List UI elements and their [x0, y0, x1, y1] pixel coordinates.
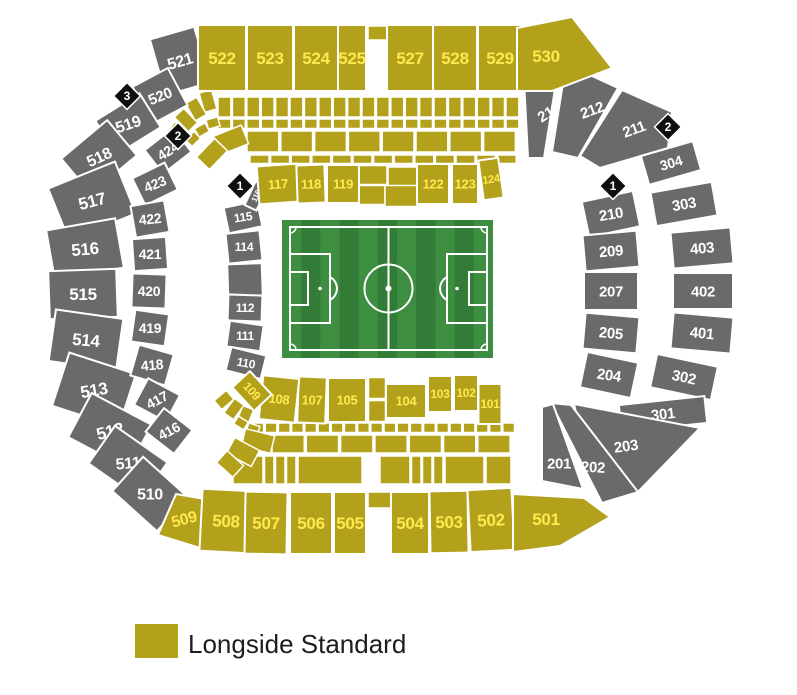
seating-block — [290, 119, 303, 129]
seating-block — [445, 456, 484, 484]
marker-label: 2 — [665, 120, 672, 134]
section-102[interactable]: 102 — [454, 375, 478, 411]
seating-block — [486, 456, 511, 484]
seating-block — [276, 119, 289, 129]
section-421: 421 — [132, 237, 168, 271]
legend-swatch — [135, 624, 178, 658]
section-420: 420 — [131, 273, 166, 308]
seating-block — [376, 97, 389, 117]
seating-block — [368, 26, 388, 40]
section-104[interactable]: 104 — [386, 384, 426, 418]
section-112: 112 — [228, 294, 263, 321]
seating-block — [332, 155, 351, 164]
section-118[interactable]: 118 — [296, 165, 325, 204]
seating-block — [333, 97, 346, 117]
seating-block — [463, 119, 476, 129]
seating-block — [376, 119, 389, 129]
section-506[interactable]: 506 — [290, 492, 332, 554]
seating-block — [247, 131, 279, 152]
seating-block — [506, 97, 519, 117]
seating-block — [456, 155, 475, 164]
seating-block — [261, 97, 274, 117]
seating-block — [391, 97, 404, 117]
seating-block — [375, 435, 407, 453]
seating-block — [434, 119, 447, 129]
football-pitch — [282, 220, 493, 358]
seating-block — [247, 119, 260, 129]
seating-block — [382, 131, 414, 152]
seating-block — [410, 423, 422, 433]
seating-block — [405, 97, 418, 117]
seating-block — [444, 435, 476, 453]
legend-label: Longside Standard — [188, 629, 406, 659]
seating-block — [374, 155, 393, 164]
seating-block — [348, 97, 361, 117]
seating-block — [450, 423, 462, 433]
section-303: 303 — [651, 182, 718, 226]
seating-block — [265, 456, 275, 484]
seating-block — [290, 97, 303, 117]
seating-block — [409, 435, 441, 453]
seating-block — [384, 423, 396, 433]
section-505[interactable]: 505 — [334, 492, 366, 554]
section-123[interactable]: 123 — [452, 164, 478, 204]
section-525[interactable]: 525 — [338, 25, 366, 91]
seating-block — [298, 456, 362, 484]
section-209: 209 — [583, 231, 640, 272]
section-423: 423 — [132, 163, 178, 206]
seating-block — [369, 401, 386, 422]
section-527[interactable]: 527 — [387, 25, 433, 91]
seating-block — [435, 155, 454, 164]
seating-block — [292, 423, 304, 433]
seating-block — [348, 131, 380, 152]
seating-block — [344, 423, 356, 433]
section-124[interactable]: 124 — [478, 158, 503, 200]
seating-block — [362, 97, 375, 117]
seating-block — [227, 263, 262, 296]
section-117[interactable]: 117 — [257, 164, 300, 205]
seating-block — [380, 456, 410, 484]
seating-block — [448, 97, 461, 117]
section-528[interactable]: 528 — [433, 25, 477, 91]
seating-block — [291, 155, 310, 164]
penalty-spot-left — [318, 287, 322, 291]
section-101[interactable]: 101 — [479, 384, 502, 424]
seating-block — [437, 423, 449, 433]
seating-block — [420, 119, 433, 129]
section-522[interactable]: 522 — [198, 25, 246, 91]
seating-block — [218, 97, 231, 117]
seating-block — [319, 97, 332, 117]
marker-label: 3 — [124, 89, 131, 103]
pitch-stripe — [282, 220, 301, 358]
seating-block — [424, 423, 436, 433]
section-402: 402 — [673, 273, 733, 309]
section-401: 401 — [671, 312, 734, 353]
marker-label: 2 — [175, 129, 182, 143]
section-523[interactable]: 523 — [247, 25, 293, 91]
pitch-stripe — [359, 220, 378, 358]
seating-block — [463, 423, 475, 433]
seating-block — [341, 435, 373, 453]
seating-block — [391, 119, 404, 129]
section-302: 302 — [650, 354, 718, 400]
seating-block — [412, 456, 422, 484]
seating-block — [405, 119, 418, 129]
center-spot — [386, 286, 392, 292]
seating-block — [272, 435, 304, 453]
section-103[interactable]: 103 — [428, 376, 452, 412]
section-107[interactable]: 107 — [297, 377, 327, 424]
seating-block — [250, 155, 269, 164]
seating-block — [388, 167, 417, 187]
seating-block — [371, 423, 383, 433]
seating-block — [434, 456, 444, 484]
seating-block — [477, 97, 490, 117]
section-105[interactable]: 105 — [328, 378, 366, 422]
section-419: 419 — [131, 310, 169, 346]
seating-block — [397, 423, 409, 433]
section-501[interactable]: 501 — [513, 494, 610, 552]
section-503[interactable]: 503 — [429, 491, 468, 554]
seating-block — [247, 97, 260, 117]
seating-block — [305, 423, 317, 433]
seating-block — [362, 119, 375, 129]
section-504[interactable]: 504 — [391, 492, 429, 554]
seating-block — [353, 155, 372, 164]
seating-block — [276, 456, 286, 484]
seating-block — [385, 186, 417, 207]
section-502[interactable]: 502 — [467, 488, 514, 552]
seat-map: 5215205195185175165155145135125115104244… — [0, 0, 797, 695]
seating-block — [331, 423, 343, 433]
seating-block — [463, 97, 476, 117]
seating-block — [306, 435, 338, 453]
section-122[interactable]: 122 — [417, 164, 449, 204]
section-114: 114 — [226, 230, 263, 263]
seating-block — [506, 119, 519, 129]
seating-block — [276, 97, 289, 117]
seating-block — [358, 423, 370, 433]
seating-block — [281, 131, 313, 152]
seating-block — [503, 423, 515, 433]
seating-block — [333, 119, 346, 129]
section-422: 422 — [130, 200, 169, 237]
seating-block — [304, 97, 317, 117]
seating-block — [416, 131, 448, 152]
seating-block — [423, 456, 433, 484]
section-403: 403 — [671, 227, 734, 268]
seating-block — [478, 435, 510, 453]
seating-block — [369, 378, 386, 399]
seating-block — [434, 97, 447, 117]
seating-block — [315, 131, 347, 152]
section-204: 204 — [580, 352, 638, 398]
pitch-stripe — [474, 220, 493, 358]
seating-block — [450, 131, 482, 152]
section-119[interactable]: 119 — [327, 165, 359, 203]
section-529[interactable]: 529 — [478, 25, 522, 91]
seating-block — [265, 423, 277, 433]
marker-label: 1 — [610, 179, 617, 193]
seating-block — [497, 155, 516, 164]
legend: Longside Standard — [135, 624, 406, 659]
seating-block — [420, 97, 433, 117]
pitch-stripe — [435, 220, 454, 358]
seating-block — [348, 119, 361, 129]
section-507[interactable]: 507 — [244, 492, 287, 555]
section-524[interactable]: 524 — [294, 25, 338, 91]
seating-block — [357, 166, 387, 185]
seating-block — [232, 97, 245, 117]
marker-label: 1 — [237, 179, 244, 193]
seating-block — [261, 119, 274, 129]
seating-block — [394, 155, 413, 164]
seating-block — [492, 119, 505, 129]
seating-block — [304, 119, 317, 129]
seating-block — [312, 155, 331, 164]
seating-block — [287, 456, 297, 484]
seating-block — [319, 119, 332, 129]
section-205: 205 — [583, 313, 640, 354]
seating-block — [492, 97, 505, 117]
seating-block — [484, 131, 516, 152]
seating-block — [358, 186, 385, 205]
section-207: 207 — [584, 272, 638, 310]
seating-block — [278, 423, 290, 433]
seating-block — [415, 155, 434, 164]
seating-block — [477, 119, 490, 129]
seating-block — [448, 119, 461, 129]
penalty-spot-right — [455, 287, 459, 291]
seating-block — [271, 155, 290, 164]
